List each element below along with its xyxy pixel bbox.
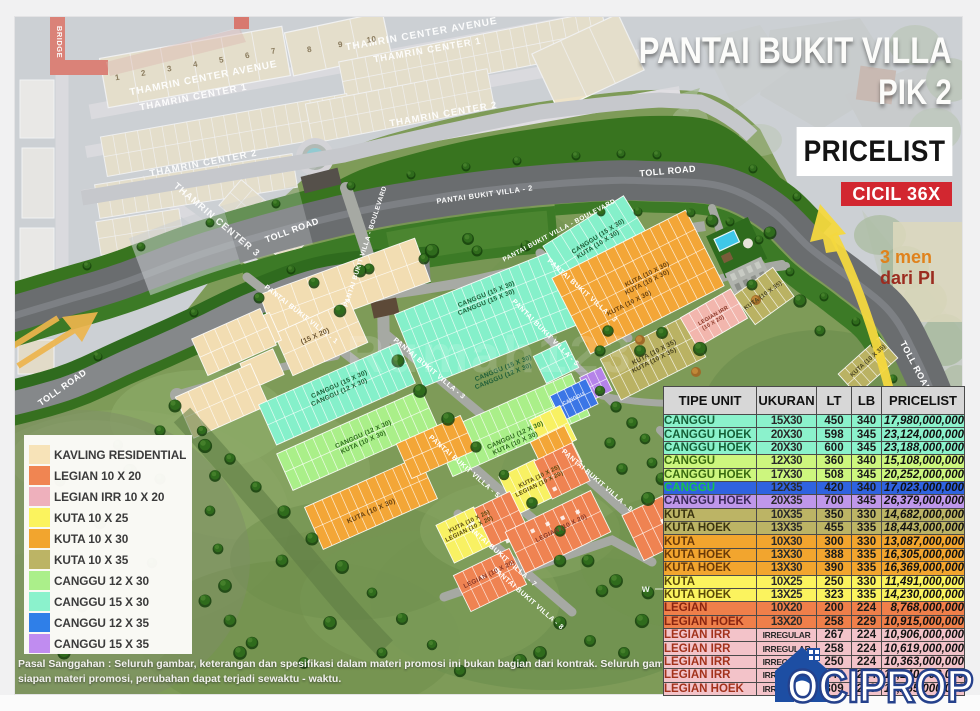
svg-text:10: 10 — [366, 34, 377, 45]
svg-text:w: w — [641, 584, 650, 595]
svg-text:Rumah123: Rumah123 — [347, 326, 634, 384]
svg-text:BRIDGE: BRIDGE — [55, 26, 64, 58]
